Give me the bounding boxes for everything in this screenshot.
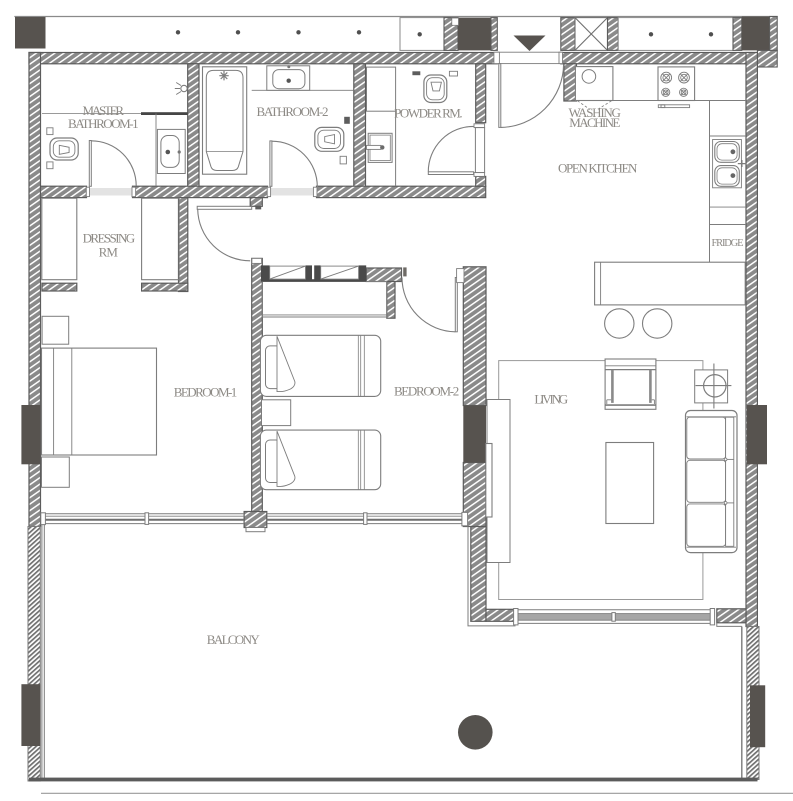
svg-text:BATHROOM-1: BATHROOM-1 xyxy=(68,116,139,131)
svg-text:BATHROOM-2: BATHROOM-2 xyxy=(257,104,329,119)
svg-text:RM: RM xyxy=(99,245,119,260)
svg-text:LIVING: LIVING xyxy=(534,392,568,407)
svg-text:BEDROOM-2: BEDROOM-2 xyxy=(394,383,459,398)
svg-text:POWDER RM.: POWDER RM. xyxy=(394,105,463,120)
svg-text:MACHINE: MACHINE xyxy=(569,115,620,130)
svg-text:BEDROOM-1: BEDROOM-1 xyxy=(174,385,238,400)
svg-text:DRESSING: DRESSING xyxy=(83,231,136,246)
svg-text:FRIDGE: FRIDGE xyxy=(712,238,744,249)
svg-text:OPEN KITCHEN: OPEN KITCHEN xyxy=(558,161,638,176)
svg-text:BALCONY: BALCONY xyxy=(207,632,261,647)
